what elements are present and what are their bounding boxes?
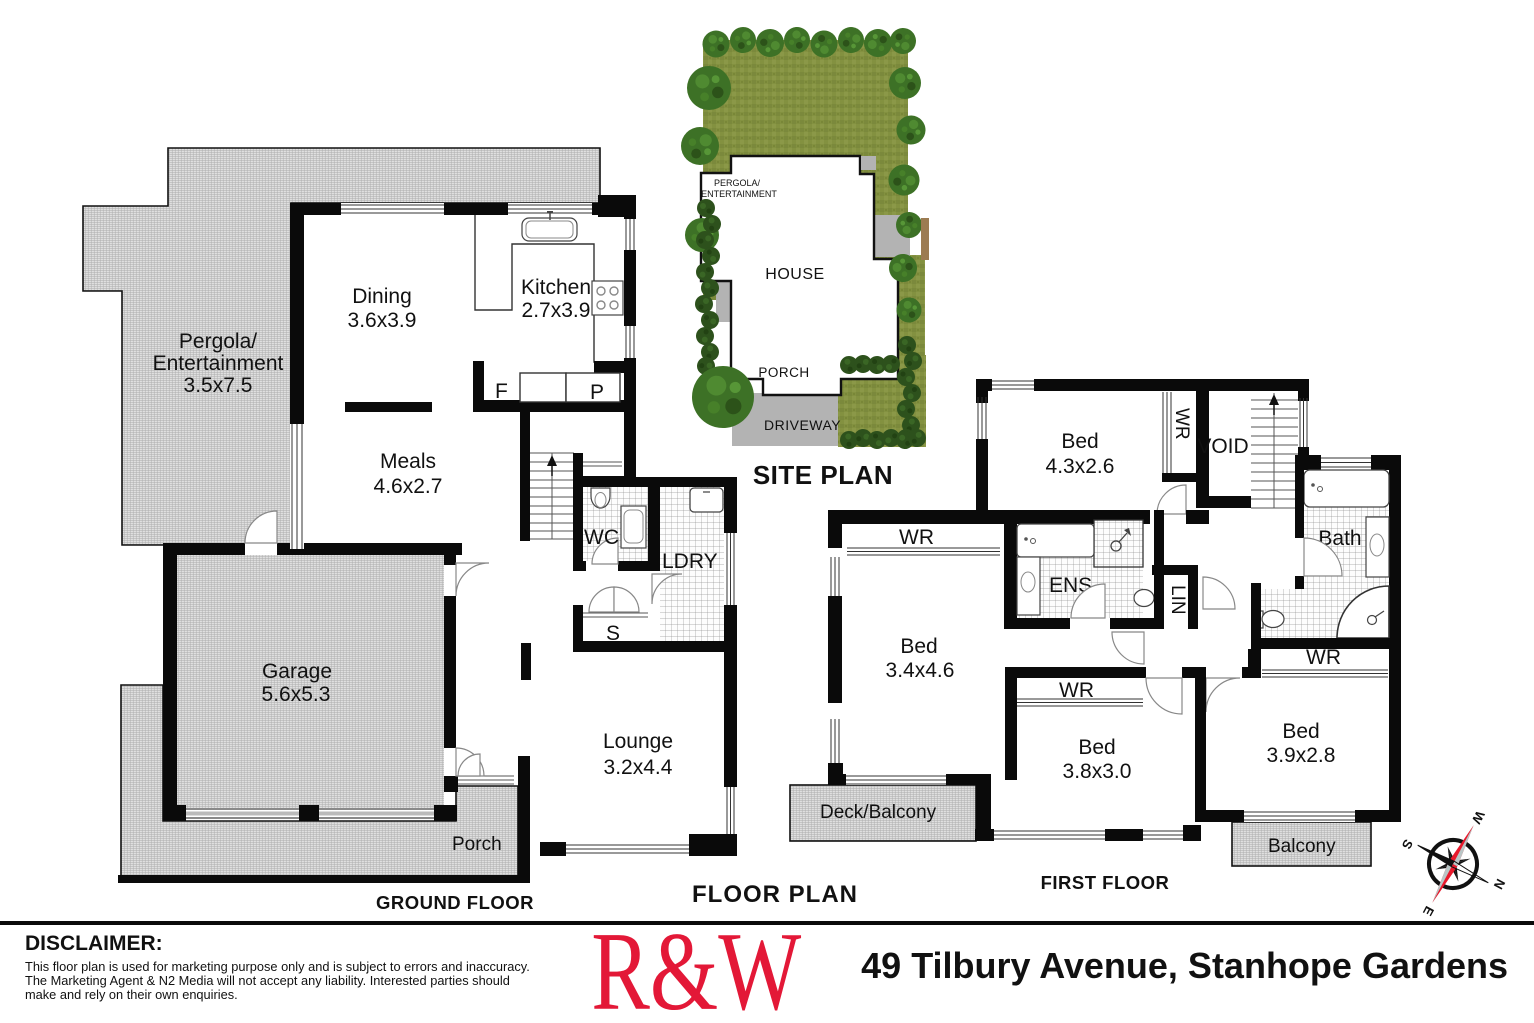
svg-text:Deck/Balcony: Deck/Balcony xyxy=(820,802,937,823)
svg-text:PORCH: PORCH xyxy=(758,365,809,380)
svg-text:Porch: Porch xyxy=(452,834,502,855)
svg-text:HOUSE: HOUSE xyxy=(765,266,824,283)
svg-text:4.3x2.6: 4.3x2.6 xyxy=(1046,455,1115,478)
svg-text:WR: WR xyxy=(899,526,934,549)
svg-text:3.9x2.8: 3.9x2.8 xyxy=(1267,744,1336,767)
svg-text:Meals: Meals xyxy=(380,450,436,473)
svg-text:4.6x2.7: 4.6x2.7 xyxy=(374,475,443,498)
svg-text:Lounge: Lounge xyxy=(603,730,673,753)
svg-text:FIRST FLOOR: FIRST FLOOR xyxy=(1041,872,1170,893)
svg-text:This floor plan is used for ma: This floor plan is used for marketing pu… xyxy=(25,959,530,974)
svg-text:3.5x7.5: 3.5x7.5 xyxy=(184,374,253,397)
svg-text:Bed: Bed xyxy=(900,635,937,658)
svg-text:WR: WR xyxy=(1171,408,1192,440)
svg-text:Pergola/: Pergola/ xyxy=(179,330,257,353)
svg-text:FLOOR PLAN: FLOOR PLAN xyxy=(692,881,858,908)
svg-text:Balcony: Balcony xyxy=(1268,836,1336,857)
svg-text:WR: WR xyxy=(1306,646,1341,669)
svg-text:ENTERTAINMENT: ENTERTAINMENT xyxy=(701,189,777,199)
svg-text:Kitchen: Kitchen xyxy=(521,276,591,299)
svg-text:LDRY: LDRY xyxy=(662,550,718,573)
svg-text:Dining: Dining xyxy=(352,285,412,308)
svg-text:The Marketing Agent & N2 Media: The Marketing Agent & N2 Media will not … xyxy=(25,973,510,988)
svg-text:3.2x4.4: 3.2x4.4 xyxy=(604,756,673,779)
svg-text:Bed: Bed xyxy=(1078,736,1115,759)
svg-text:5.6x5.3: 5.6x5.3 xyxy=(262,683,331,706)
svg-text:3.6x3.9: 3.6x3.9 xyxy=(348,309,417,332)
svg-text:Bed: Bed xyxy=(1282,720,1319,743)
svg-text:DISCLAIMER:: DISCLAIMER: xyxy=(25,932,163,955)
svg-text:PERGOLA/: PERGOLA/ xyxy=(714,178,761,188)
svg-text:3.4x4.6: 3.4x4.6 xyxy=(886,659,955,682)
svg-text:DRIVEWAY: DRIVEWAY xyxy=(764,417,841,433)
svg-text:3.8x3.0: 3.8x3.0 xyxy=(1063,760,1132,783)
svg-text:F: F xyxy=(495,380,508,403)
svg-text:SITE PLAN: SITE PLAN xyxy=(753,460,893,490)
svg-text:R&W: R&W xyxy=(591,909,801,1023)
svg-text:2.7x3.9: 2.7x3.9 xyxy=(522,299,591,322)
svg-text:Bed: Bed xyxy=(1061,430,1098,453)
svg-text:P: P xyxy=(590,381,604,404)
svg-text:GROUND FLOOR: GROUND FLOOR xyxy=(376,892,534,913)
svg-text:49 Tilbury Avenue, Stanhope Ga: 49 Tilbury Avenue, Stanhope Gardens xyxy=(861,945,1508,986)
svg-text:Entertainment: Entertainment xyxy=(153,352,284,375)
svg-text:WC: WC xyxy=(584,526,619,549)
svg-text:LIN: LIN xyxy=(1167,585,1188,615)
svg-text:VOID: VOID xyxy=(1197,435,1248,458)
svg-text:Garage: Garage xyxy=(262,660,332,683)
svg-text:make and rely on their own enq: make and rely on their own enquiries. xyxy=(25,987,238,1002)
